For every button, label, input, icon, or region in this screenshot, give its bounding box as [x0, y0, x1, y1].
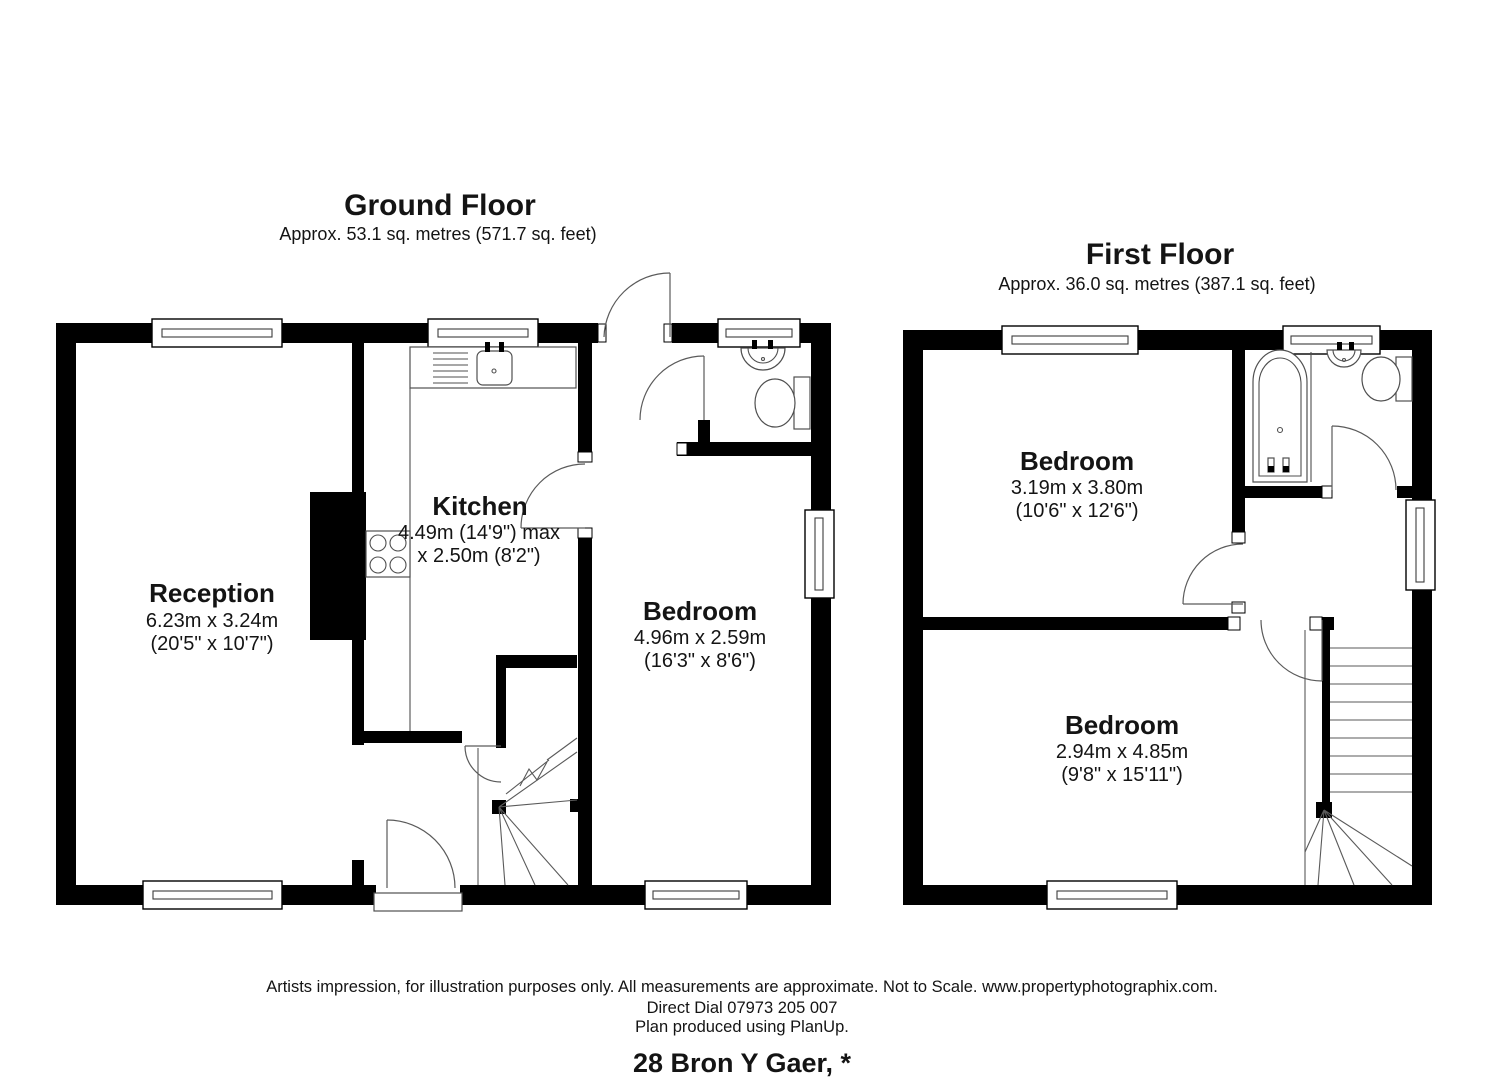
room-dims-metric: 4.49m (14'9") max [398, 522, 560, 544]
ground-floor-title: Ground Floor [344, 189, 536, 222]
first-floor-title: First Floor [1086, 238, 1235, 271]
toilet-icon-gf [755, 377, 810, 429]
kitchen-door [521, 464, 585, 528]
first-floor-area: Approx. 36.0 sq. metres (387.1 sq. feet) [998, 274, 1315, 294]
disclaimer-text: Artists impression, for illustration pur… [266, 978, 1218, 996]
room-dims-imperial: (20'5" x 10'7") [150, 633, 273, 655]
bedroom2-label: Bedroom 2.94m x 4.85m (9'8" x 15'11") [1056, 710, 1188, 786]
bedroom2-wall-cap [1228, 617, 1240, 630]
bathroom-door-ff [1332, 426, 1396, 490]
produced-text: Plan produced using PlanUp. [635, 1018, 849, 1036]
first-floor-walls [903, 330, 1432, 905]
room-title: Bedroom [1020, 446, 1134, 476]
room-dims-imperial: (16'3" x 8'6") [644, 650, 756, 672]
bedroom-wall-cap [578, 528, 592, 538]
stairs-ff [1305, 630, 1412, 885]
property-address: 28 Bron Y Gaer, * [633, 1048, 852, 1078]
kitchen-window [428, 319, 538, 347]
stairs-gf [478, 738, 578, 885]
reception-window-top [152, 319, 282, 347]
room-dims-metric: 6.23m x 3.24m [146, 610, 278, 632]
room-dims-imperial: x 2.50m (8'2") [417, 545, 540, 567]
bedroom1-door-jamb-top [1232, 532, 1245, 543]
phone-text: Direct Dial 07973 205 007 [647, 999, 838, 1017]
ground-floor-plan: Ground Floor Approx. 53.1 sq. metres (57… [56, 189, 834, 911]
bathroom-wall-cap [677, 443, 687, 455]
floorplan-page: Ground Floor Approx. 53.1 sq. metres (57… [0, 0, 1485, 1080]
kitchen-door-jamb [578, 452, 592, 462]
room-dims-imperial: (9'8" x 15'11") [1061, 764, 1183, 786]
toilet-icon-ff [1362, 357, 1412, 401]
room-title: Bedroom [1065, 710, 1179, 740]
bedroom2-window [1047, 881, 1177, 909]
kitchen-label: Kitchen 4.49m (14'9") max x 2.50m (8'2") [398, 491, 560, 567]
bedroom2-door-jamb [1310, 617, 1322, 630]
reception-window-bottom [143, 881, 282, 909]
bedroom1-label: Bedroom 3.19m x 3.80m (10'6" x 12'6") [1011, 446, 1143, 522]
front-door [374, 820, 462, 911]
bedroom-side-window-gf [805, 510, 834, 598]
floorplan-canvas: Ground Floor Approx. 53.1 sq. metres (57… [0, 0, 1485, 1080]
room-dims-metric: 3.19m x 3.80m [1011, 477, 1143, 499]
bathroom-door-jamb-ff [1322, 486, 1332, 498]
room-dims-metric: 4.96m x 2.59m [634, 627, 766, 649]
back-door [598, 273, 672, 344]
room-title: Reception [149, 578, 275, 608]
chimney-breast [310, 492, 366, 640]
bathroom-window-gf [718, 319, 800, 347]
room-title: Kitchen [432, 491, 527, 521]
bathroom-door-gf [640, 356, 704, 420]
footer: Artists impression, for illustration pur… [266, 978, 1218, 1078]
landing-side-window [1406, 500, 1435, 590]
room-dims-imperial: (10'6" x 12'6") [1015, 500, 1138, 522]
bedroom-gf-label: Bedroom 4.96m x 2.59m (16'3" x 8'6") [634, 596, 766, 672]
stair-rail [1322, 630, 1330, 806]
stair-treads [1330, 648, 1412, 792]
ground-floor-area: Approx. 53.1 sq. metres (571.7 sq. feet) [279, 224, 596, 244]
bedroom1-window [1002, 326, 1138, 354]
reception-label: Reception 6.23m x 3.24m (20'5" x 10'7") [146, 578, 278, 655]
room-dims-metric: 2.94m x 4.85m [1056, 741, 1188, 763]
bath-icon [1253, 350, 1307, 482]
cupboard-door [465, 746, 501, 782]
first-floor-plan: First Floor Approx. 36.0 sq. metres (387… [903, 238, 1435, 909]
bedroom1-door [1183, 544, 1243, 604]
bedroom-window-gf [645, 881, 747, 909]
room-title: Bedroom [643, 596, 757, 626]
